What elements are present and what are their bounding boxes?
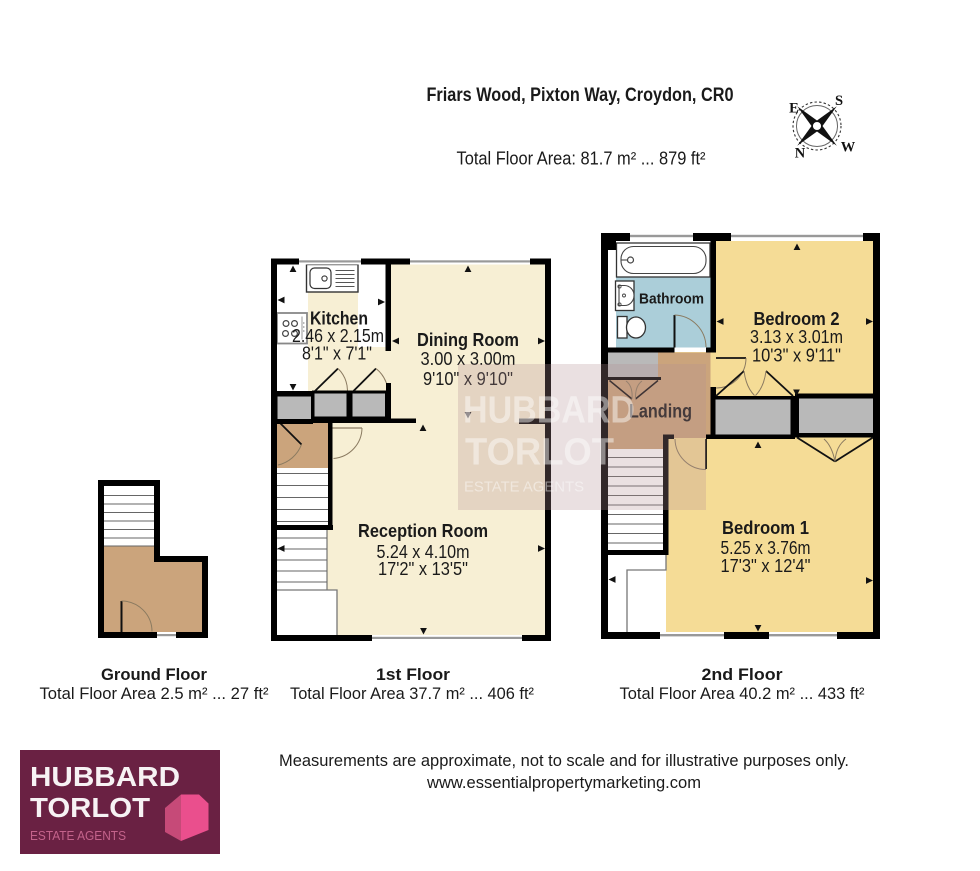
svg-text:Bedroom 2: Bedroom 2 [754, 309, 840, 329]
svg-text:TORLOT: TORLOT [30, 792, 150, 823]
svg-text:Reception Room: Reception Room [358, 521, 488, 541]
svg-text:W: W [841, 140, 856, 156]
svg-text:2nd Floor: 2nd Floor [702, 665, 783, 684]
svg-text:Bathroom: Bathroom [639, 292, 704, 308]
svg-text:ESTATE AGENTS: ESTATE AGENTS [30, 828, 126, 843]
svg-text:5.25 x 3.76m: 5.25 x 3.76m [721, 538, 811, 558]
svg-text:Measurements are approximate,: Measurements are approximate, not to sca… [279, 751, 849, 770]
svg-text:HUBBARD: HUBBARD [30, 761, 180, 792]
svg-text:Dining Room: Dining Room [417, 330, 519, 350]
svg-text:1st Floor: 1st Floor [376, 665, 450, 684]
svg-text:10'3" x 9'11": 10'3" x 9'11" [752, 346, 841, 366]
svg-text:ESTATE AGENTS: ESTATE AGENTS [464, 479, 584, 496]
svg-text:17'3" x 12'4": 17'3" x 12'4" [721, 556, 811, 576]
svg-text:Ground Floor: Ground Floor [101, 665, 207, 684]
svg-text:Total Floor Area 2.5 m² ... 27: Total Floor Area 2.5 m² ... 27 ft² [40, 684, 269, 703]
svg-text:E: E [789, 101, 799, 117]
svg-text:HUBBARD: HUBBARD [463, 390, 635, 432]
svg-text:N: N [795, 146, 806, 162]
svg-text:www.essentialpropertymarketing: www.essentialpropertymarketing.com [426, 773, 701, 792]
svg-text:Total Floor Area 40.2 m² ... 4: Total Floor Area 40.2 m² ... 433 ft² [620, 684, 865, 703]
svg-text:17'2" x 13'5": 17'2" x 13'5" [378, 559, 468, 579]
svg-text:Bedroom 1: Bedroom 1 [722, 518, 809, 538]
svg-text:8'1" x 7'1": 8'1" x 7'1" [302, 344, 372, 364]
svg-text:Total Floor Area 37.7 m² ... 4: Total Floor Area 37.7 m² ... 406 ft² [290, 684, 534, 703]
svg-text:Total Floor Area: 81.7 m² ...: Total Floor Area: 81.7 m² ... 879 ft² [457, 149, 706, 169]
svg-text:TORLOT: TORLOT [465, 432, 614, 474]
svg-text:Friars Wood, Pixton Way, Croyd: Friars Wood, Pixton Way, Croydon, CR0 [427, 85, 734, 106]
svg-text:3.13 x 3.01m: 3.13 x 3.01m [750, 327, 843, 347]
svg-text:S: S [835, 93, 843, 109]
